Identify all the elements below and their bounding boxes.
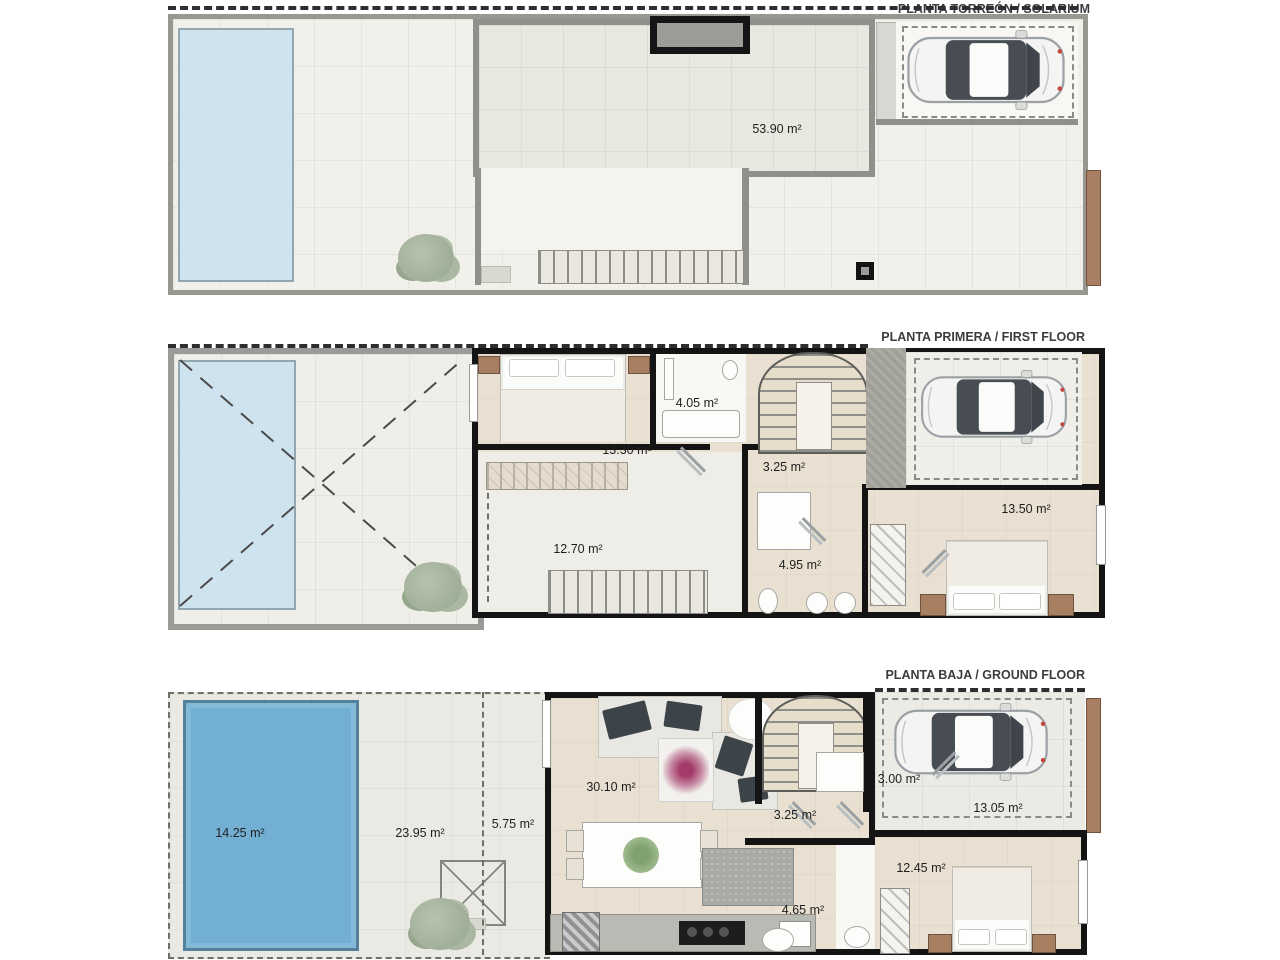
nightstand-icon: [928, 934, 952, 953]
car-icon: [888, 702, 1054, 782]
plot-boundary-dashes: [875, 688, 1085, 692]
wall: [650, 354, 656, 446]
plan-title-first-floor: PLANTA PRIMERA / FIRST FLOOR: [881, 330, 1085, 344]
bed-icon: [952, 866, 1032, 952]
room-area-label: 13.05 m²: [973, 801, 1022, 815]
nightstand-icon: [1032, 934, 1056, 953]
sink-icon: [806, 592, 828, 614]
nightstand-icon: [920, 594, 946, 616]
wall: [876, 119, 1078, 125]
nightstand-icon: [1048, 594, 1074, 616]
car-icon: [918, 368, 1070, 446]
wall: [755, 692, 762, 804]
wardrobe-icon: [870, 524, 906, 606]
radiator-icon: [664, 358, 674, 400]
stairs-to-solarium: [538, 250, 744, 284]
car-icon: [904, 28, 1068, 112]
pool: [183, 700, 359, 951]
room-area-label: 13.30 m²: [602, 443, 651, 457]
room-area-label: 3.00 m²: [878, 772, 920, 786]
kitchen-island-icon: [702, 848, 794, 906]
floor-plan-sheet: PLANTA TORREÓN / SOLARIUM 53.90 m² PLANT…: [0, 0, 1280, 960]
wall: [862, 484, 868, 616]
appliance-icon: [562, 912, 600, 952]
gravel-pad: [481, 266, 511, 283]
sink-icon: [844, 926, 870, 948]
bed-icon: [500, 354, 626, 442]
room-area-label: 3.25 m²: [774, 808, 816, 822]
tree-icon: [410, 898, 470, 950]
bathtub-icon: [662, 410, 740, 438]
sink-icon: [834, 592, 856, 614]
tree-icon: [398, 234, 454, 282]
room-area-label: 5.75 m²: [492, 817, 534, 831]
chair-icon: [566, 830, 584, 852]
terrace-stairs: [548, 570, 708, 614]
room-area-label: 23.95 m²: [395, 826, 444, 840]
pool: [178, 28, 294, 282]
concrete-pier: [866, 348, 906, 488]
side-fence: [1086, 170, 1101, 286]
room-area-label: 12.45 m²: [896, 861, 945, 875]
staircase: [758, 352, 868, 454]
pergola-deck: [486, 462, 628, 490]
wall: [478, 444, 710, 450]
lower-court: [478, 168, 746, 250]
room-area-label: 13.50 m²: [1001, 502, 1050, 516]
storage-closet: [816, 752, 864, 792]
nightstand-icon: [478, 356, 500, 374]
plan-title-ground-floor: PLANTA BAJA / GROUND FLOOR: [885, 668, 1085, 682]
dining-table-icon: [582, 822, 702, 888]
bed-icon: [946, 540, 1048, 616]
side-fence: [1086, 698, 1101, 833]
window: [1078, 860, 1088, 924]
room-area-label: 4.05 m²: [676, 396, 718, 410]
planter: [658, 738, 714, 802]
wardrobe-icon: [880, 888, 910, 954]
carport-wall: [876, 22, 898, 121]
wall: [742, 444, 748, 618]
wall: [745, 838, 875, 845]
tree-icon: [404, 562, 462, 612]
stair-bulkhead: [650, 16, 750, 54]
room-area-label: 53.90 m²: [752, 122, 801, 136]
plot-boundary-dashes: [168, 6, 1078, 10]
toilet-icon: [762, 928, 794, 952]
chimney-vent: [856, 262, 874, 280]
porch-dash-line: [482, 692, 484, 955]
room-area-label: 3.25 m²: [763, 460, 805, 474]
room-area-label: 12.70 m²: [553, 542, 602, 556]
toilet-icon: [758, 588, 778, 614]
room-area-label: 30.10 m²: [586, 780, 635, 794]
window: [469, 364, 478, 422]
window: [1096, 505, 1106, 565]
wall: [870, 830, 1087, 837]
window: [542, 700, 551, 768]
chair-icon: [566, 858, 584, 880]
room-area-label: 4.65 m²: [782, 903, 824, 917]
wall: [863, 692, 871, 812]
room-area-label: 4.95 m²: [779, 558, 821, 572]
room-area-label: 14.25 m²: [215, 826, 264, 840]
toilet-icon: [722, 360, 738, 380]
nightstand-icon: [628, 356, 650, 374]
